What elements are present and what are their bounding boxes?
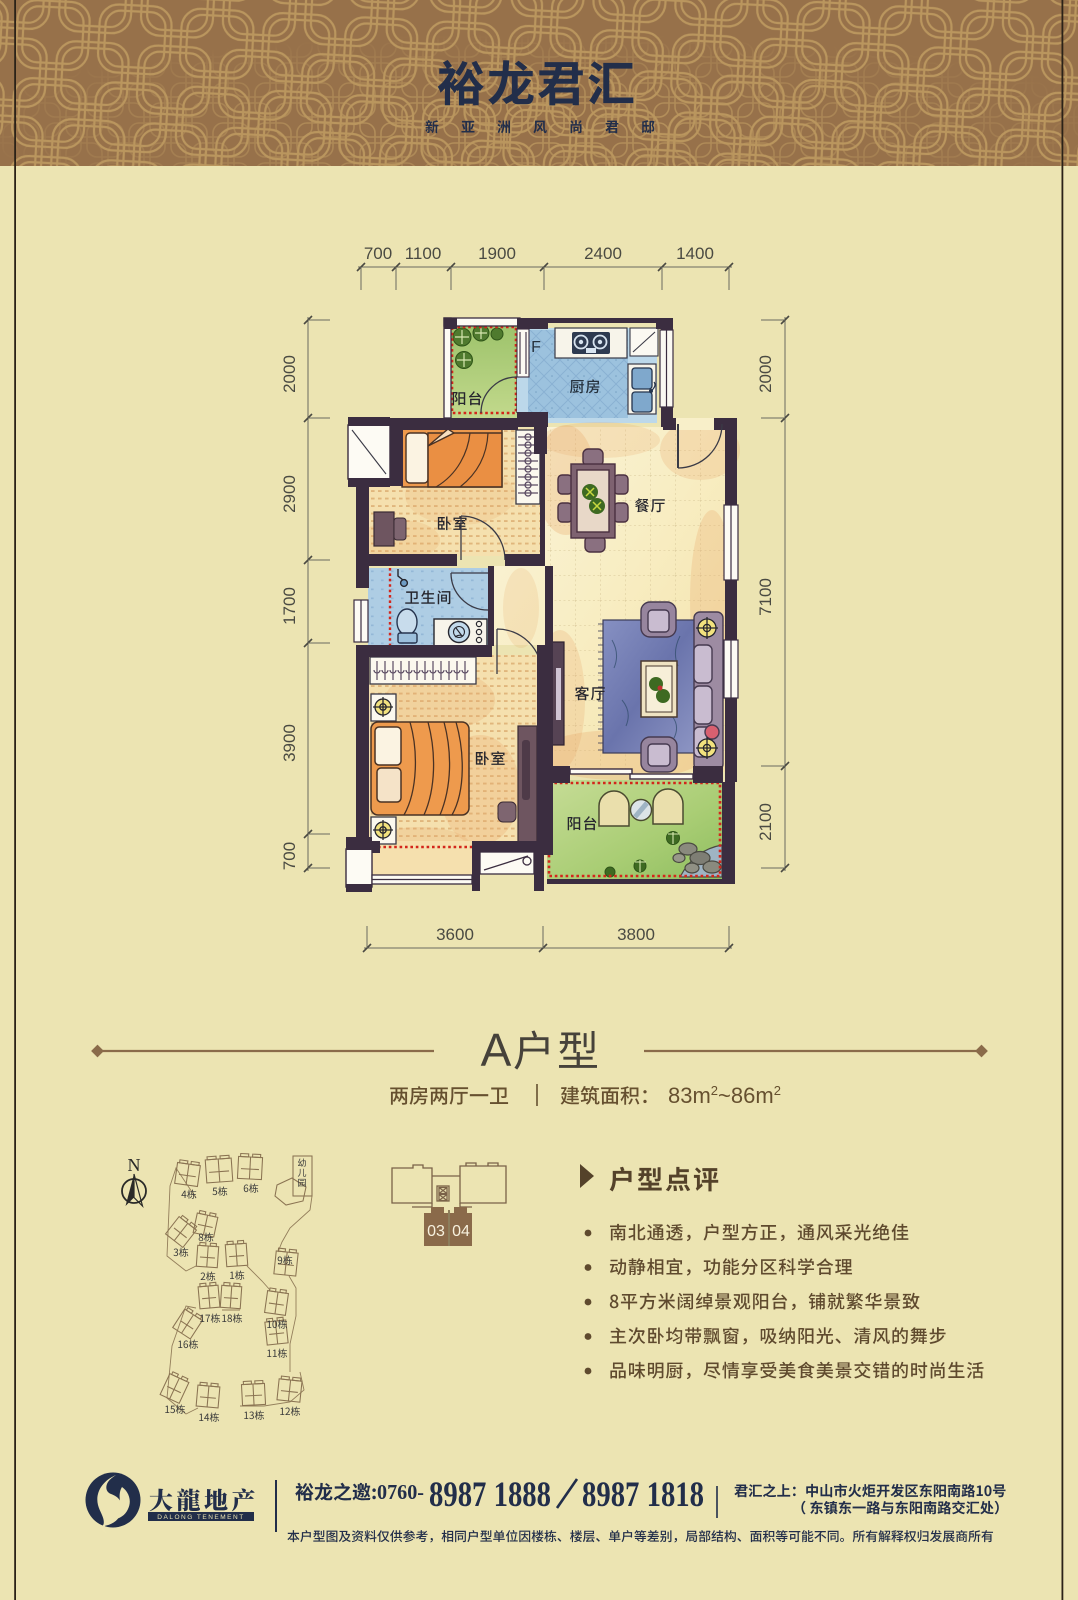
svg-text:04: 04 — [452, 1223, 470, 1240]
svg-text:2900: 2900 — [280, 475, 299, 513]
svg-text:83m2~86m2: 83m2~86m2 — [668, 1083, 781, 1108]
svg-text:8987 1818: 8987 1818 — [582, 1474, 704, 1514]
svg-text:3900: 3900 — [280, 724, 299, 762]
svg-text:1400: 1400 — [676, 244, 714, 263]
svg-text:8987 1888: 8987 1888 — [429, 1474, 551, 1514]
svg-text:DALONG TENEMENT: DALONG TENEMENT — [157, 1514, 244, 1521]
svg-text:F: F — [531, 339, 541, 356]
svg-text:2000: 2000 — [280, 355, 299, 393]
svg-text:N: N — [128, 1155, 141, 1175]
svg-text:1900: 1900 — [478, 244, 516, 263]
svg-text:2100: 2100 — [756, 803, 775, 841]
svg-text:03: 03 — [427, 1223, 445, 1240]
svg-text:700: 700 — [364, 244, 392, 263]
svg-text:3600: 3600 — [436, 925, 474, 944]
svg-text:A: A — [481, 1024, 512, 1076]
svg-text:7100: 7100 — [756, 578, 775, 616]
svg-text:3800: 3800 — [617, 925, 655, 944]
svg-text:2000: 2000 — [756, 355, 775, 393]
svg-text:700: 700 — [280, 842, 299, 870]
svg-text:1700: 1700 — [280, 587, 299, 625]
svg-text:2400: 2400 — [584, 244, 622, 263]
svg-text:1100: 1100 — [405, 244, 442, 263]
svg-text:0760-: 0760- — [377, 1480, 424, 1504]
